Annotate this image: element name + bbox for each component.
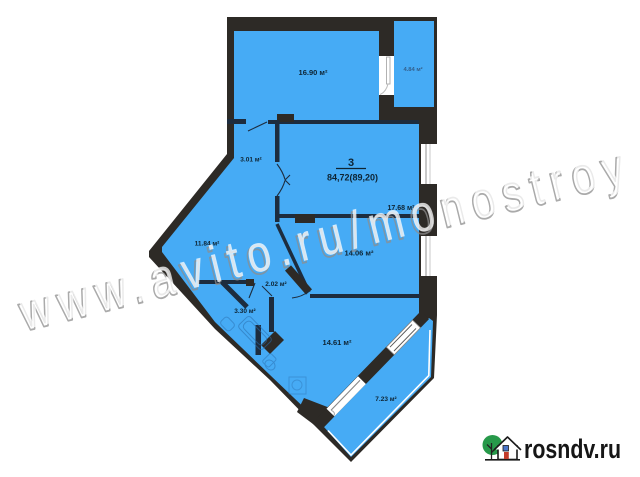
svg-text:4.84 м²: 4.84 м²	[403, 66, 422, 73]
svg-text:3.30 м²: 3.30 м²	[234, 308, 256, 315]
svg-text:14.61 м²: 14.61 м²	[323, 338, 352, 347]
svg-text:3.01 м²: 3.01 м²	[240, 157, 262, 164]
svg-text:84,72(89,20): 84,72(89,20)	[327, 173, 378, 183]
svg-text:rosndv.ru: rosndv.ru	[524, 434, 621, 464]
svg-text:16.90 м²: 16.90 м²	[299, 68, 328, 77]
svg-text:7.23 м²: 7.23 м²	[375, 396, 397, 403]
svg-text:3: 3	[348, 157, 354, 169]
